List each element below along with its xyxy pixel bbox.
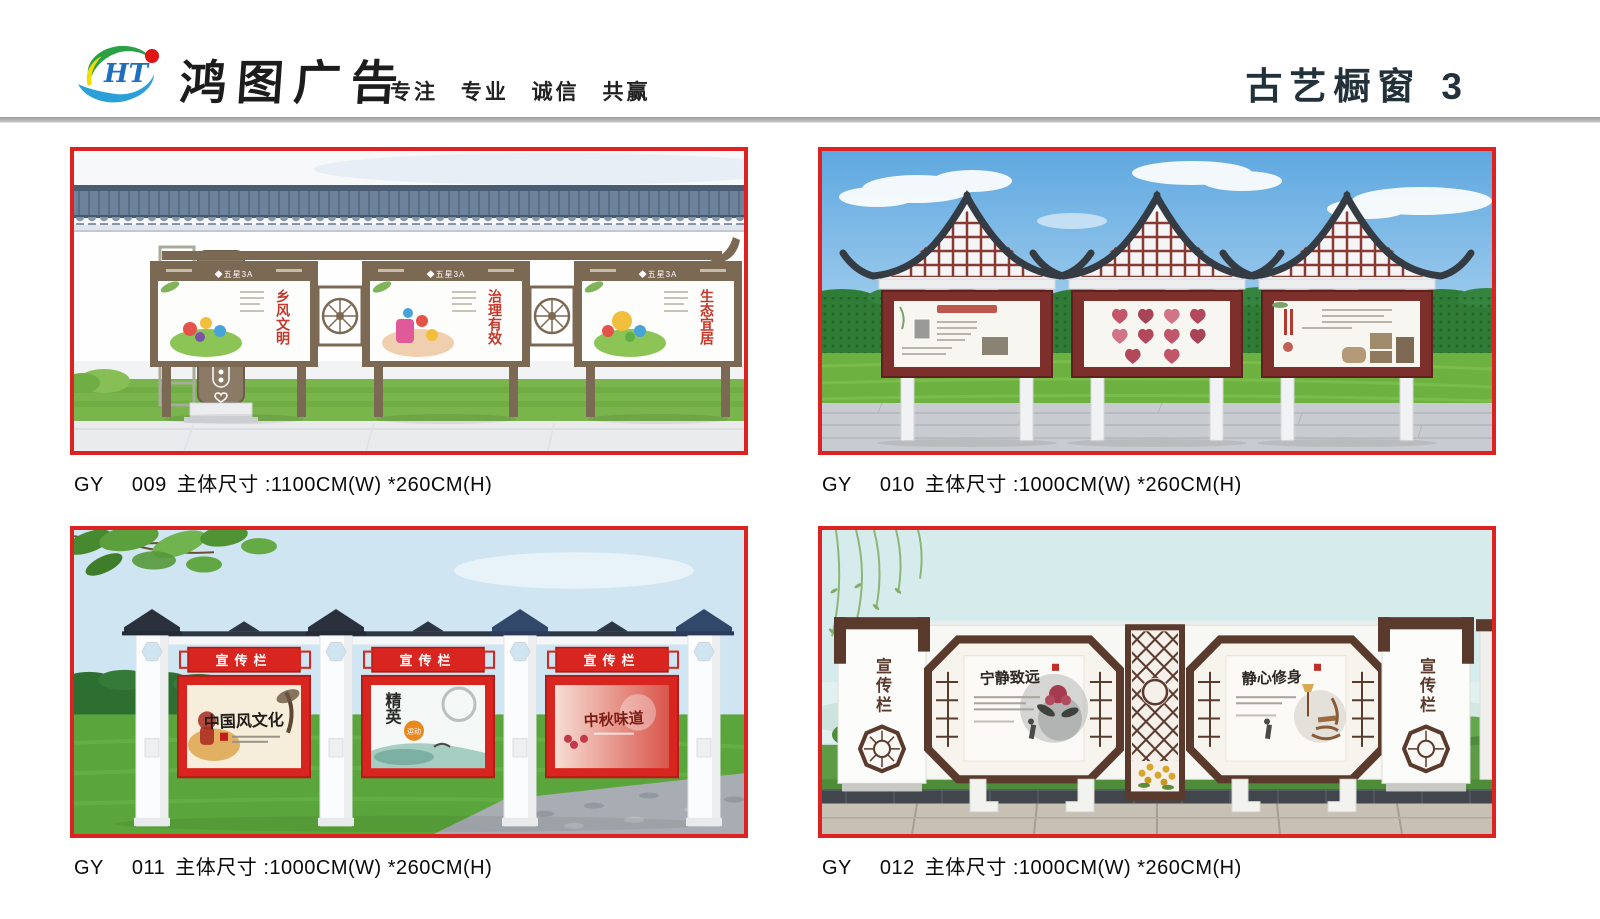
plate-title: 宣传栏 [400, 652, 457, 668]
header-divider [0, 117, 1600, 123]
catalog-page: HT 鸿图广告 专注 专业 诚信 共赢 古艺橱窗3 [0, 0, 1600, 919]
product-figure-gy012: 宣传栏 [818, 526, 1496, 880]
product-image-gy012: 宣传栏 [818, 526, 1496, 838]
catalog-row-2: 宣传栏 中国风文化 宣传栏 [70, 526, 1496, 880]
brand-name: 鸿图广告 [178, 44, 411, 113]
plate-title: 宣传栏 [584, 652, 641, 668]
product-figure-gy009: 文化 [70, 147, 748, 497]
product-image-gy010 [818, 147, 1496, 455]
product-series: GY [74, 857, 104, 879]
product-figure-gy010: GY010主体尺寸 :1000CM(W) *260CM(H) [818, 147, 1496, 497]
side-label: 宣传栏 [1417, 657, 1437, 716]
logo-graphic: HT [68, 36, 172, 114]
product-size: 主体尺寸 :1000CM(W) *260CM(H) [925, 857, 1242, 879]
product-series: GY [822, 857, 852, 879]
product-size: 主体尺寸 :1000CM(W) *260CM(H) [175, 857, 492, 879]
red-board-2: 宣传栏 精英 运动 [362, 648, 494, 778]
stone-pavement [822, 804, 1492, 834]
product-code: 010 [880, 474, 915, 496]
scene-gy010 [822, 151, 1492, 451]
product-series: GY [74, 474, 104, 496]
poster-title: 宁静致远 [980, 668, 1041, 688]
brand-slogan: 专注 专业 诚信 共赢 [390, 76, 651, 106]
board-header-text: ◆五星3A [215, 270, 254, 279]
product-caption-gy011: GY011主体尺寸 :1000CM(W) *260CM(H) [70, 851, 748, 880]
product-code: 009 [132, 474, 167, 496]
product-caption-gy010: GY010主体尺寸 :1000CM(W) *260CM(H) [818, 468, 1496, 497]
logo-monogram: HT [103, 59, 150, 89]
tile-roof [74, 185, 744, 232]
octagon-display-1: 宁静致远 [928, 639, 1120, 779]
logo-red-dot [145, 49, 159, 63]
octagon-display-2: 静心修身 [1190, 639, 1382, 779]
wall-segments [168, 621, 688, 644]
product-size: 主体尺寸 :1000CM(W) *260CM(H) [925, 474, 1242, 496]
product-image-gy011: 宣传栏 中国风文化 宣传栏 [70, 526, 748, 838]
product-caption-gy009: GY009主体尺寸 :1100CM(W) *260CM(H) [70, 468, 748, 497]
page-title: 古艺橱窗3 [1245, 56, 1462, 110]
company-logo: HT [68, 36, 172, 119]
board-header-text: ◆五星3A [639, 270, 678, 279]
plate-title: 宣传栏 [216, 652, 273, 668]
product-figure-gy011: 宣传栏 中国风文化 宣传栏 [70, 526, 748, 880]
product-code: 012 [880, 857, 915, 879]
page-number: 3 [1441, 66, 1462, 107]
red-board-1: 宣传栏 中国风文化 [178, 648, 310, 778]
poster-title: 精英 [383, 691, 402, 725]
poster-badge: 运动 [407, 727, 421, 736]
product-image-gy009: 文化 [70, 147, 748, 455]
center-lattice-panel [1128, 627, 1182, 799]
left-end-panel: 宣传栏 [834, 617, 930, 791]
side-label: 宣传栏 [873, 657, 893, 716]
scene-gy012: 宣传栏 [822, 530, 1492, 834]
catalog-row-1: 文化 [70, 147, 1496, 497]
product-size: 主体尺寸 :1100CM(W) *260CM(H) [177, 474, 493, 496]
poster-title: 乡风文明 [274, 289, 290, 346]
product-code: 011 [132, 857, 165, 879]
section-title: 古艺橱窗 [1245, 66, 1421, 107]
poster [1084, 301, 1230, 367]
board-header-text: ◆五星3A [427, 270, 466, 279]
pavement [74, 421, 744, 451]
product-caption-gy012: GY012主体尺寸 :1000CM(W) *260CM(H) [818, 851, 1496, 880]
poster-title: 中国风文化 [204, 710, 285, 732]
product-series: GY [822, 474, 852, 496]
poster-title: 中秋味道 [583, 709, 645, 730]
scene-gy009: 文化 [74, 151, 744, 451]
poster-title: 生态宜居 [698, 288, 714, 346]
scene-gy011: 宣传栏 中国风文化 宣传栏 [74, 530, 744, 834]
poster-title: 静心修身 [1242, 668, 1303, 688]
red-board-3: 宣传栏 中秋味道 [546, 648, 678, 778]
right-end-panel: 宣传栏 [1378, 617, 1474, 791]
poster-title: 治理有效 [486, 288, 502, 346]
